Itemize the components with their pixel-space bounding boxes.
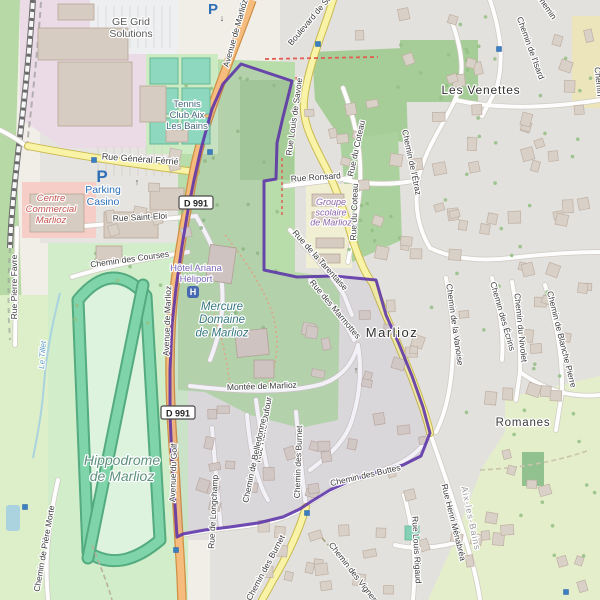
poi-label-ge-grid-solutions: GE GridSolutions — [109, 16, 152, 40]
building — [397, 7, 410, 20]
map-marker-icon — [316, 42, 321, 47]
poi-label-mercure-domaine-de-marlioz: MercureDomainede Marlioz — [195, 301, 248, 339]
road-ref-badge-label: D 991 — [166, 409, 190, 419]
building — [400, 236, 412, 246]
building — [527, 480, 537, 488]
place-label-marlioz: Marlioz — [366, 325, 418, 340]
oneway-arrow-icon: ↓ — [220, 13, 225, 23]
building — [374, 245, 389, 260]
building — [284, 571, 294, 581]
building — [503, 388, 513, 400]
building — [487, 213, 498, 225]
heliport-icon-letter: H — [190, 287, 197, 297]
parking-icon: P — [208, 1, 218, 18]
poi-label-groupe-scolaire-de-marlioz: Groupescolairede Marlioz — [310, 197, 352, 228]
map-marker-icon — [92, 158, 97, 163]
poi-label-hippodrome-de-marlioz: Hippodromede Marlioz — [84, 452, 160, 484]
building — [574, 105, 584, 115]
building — [320, 580, 332, 590]
building — [338, 525, 349, 537]
map-marker-icon — [497, 47, 502, 52]
building — [508, 211, 521, 223]
place-label-les-venettes: Les Venettes — [442, 83, 521, 97]
building — [564, 80, 575, 92]
building — [577, 197, 590, 210]
map-viewport[interactable]: PPH↓↑↑D 991D 991 Avenue de MarliozAvenue… — [0, 0, 600, 600]
building — [410, 346, 418, 354]
place-label-romanes: Romanes — [496, 417, 551, 429]
tennis-court — [150, 58, 178, 84]
street-label-rue-pierre-favre: Rue Pierre Favre — [9, 254, 19, 319]
building — [500, 524, 514, 535]
map-marker-icon — [305, 511, 310, 516]
map-canvas[interactable]: PPH↓↑↑D 991D 991 Avenue de MarliozAvenue… — [0, 0, 600, 600]
building — [540, 385, 551, 397]
building — [485, 512, 498, 524]
building — [410, 249, 422, 259]
road-ref-badge-label: D 991 — [184, 199, 208, 209]
building — [148, 183, 159, 192]
building — [336, 134, 348, 144]
building — [58, 62, 132, 126]
building — [389, 153, 403, 166]
map-marker-icon — [174, 548, 179, 553]
building — [376, 528, 386, 538]
building — [366, 99, 379, 108]
map-marker-icon — [564, 590, 569, 595]
building — [458, 220, 468, 231]
building — [548, 151, 558, 162]
building — [521, 262, 535, 277]
street-label-avenue-du-golf: Avenue du Golf — [167, 443, 179, 502]
building — [459, 310, 469, 318]
building — [555, 213, 569, 226]
building — [481, 531, 490, 541]
building — [314, 563, 328, 576]
building — [449, 249, 462, 261]
tennis-court — [182, 58, 210, 84]
building — [58, 4, 94, 20]
poi-label-parking-casino: ParkingCasino — [85, 184, 121, 208]
building — [530, 343, 542, 353]
oneway-arrow-icon: ↑ — [354, 365, 359, 375]
building — [345, 103, 357, 116]
building — [316, 238, 344, 248]
building — [562, 200, 573, 213]
building — [404, 489, 417, 501]
pond — [6, 505, 20, 531]
building — [432, 112, 445, 121]
building — [467, 137, 477, 150]
building — [472, 105, 482, 116]
building — [383, 586, 393, 595]
map-marker-icon — [23, 505, 28, 510]
map-marker-icon — [208, 150, 213, 155]
building — [140, 86, 166, 122]
oneway-arrow-icon: ↑ — [135, 177, 140, 187]
racetrack — [78, 278, 160, 561]
building — [355, 30, 364, 40]
building — [386, 300, 395, 312]
street-label-rue-du-coteau: Rue du Coteau — [348, 183, 360, 241]
building — [480, 223, 491, 234]
building — [550, 390, 562, 401]
building — [358, 180, 369, 191]
building — [484, 391, 497, 405]
building — [502, 449, 512, 459]
building — [468, 161, 480, 173]
building — [577, 283, 588, 294]
building — [305, 109, 315, 117]
building — [432, 162, 447, 176]
